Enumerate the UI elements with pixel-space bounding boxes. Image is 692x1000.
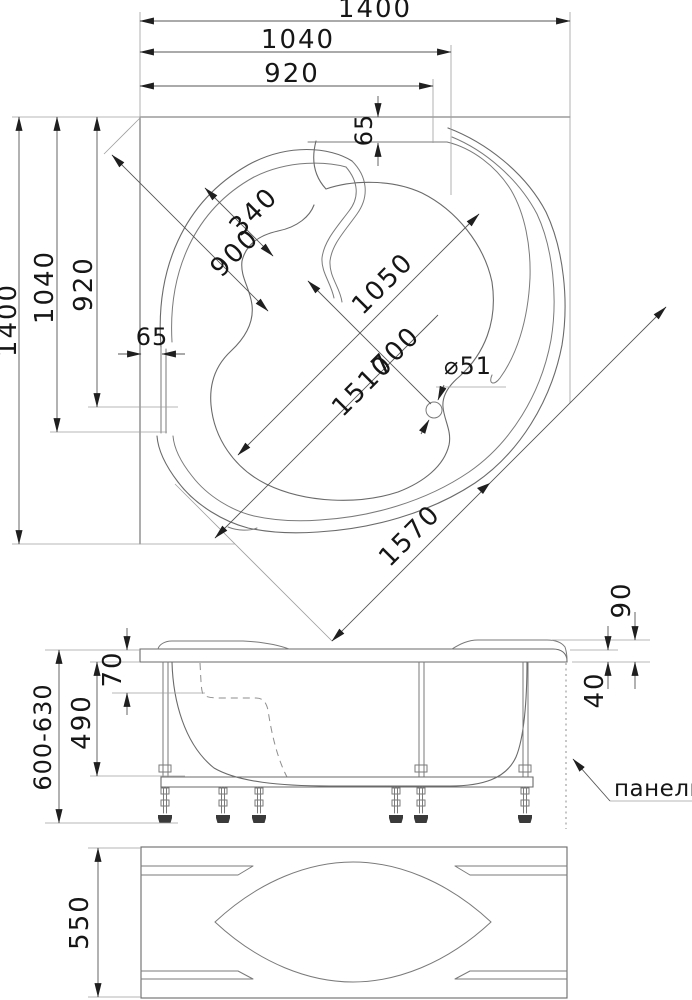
plan-1570-mid-arrow xyxy=(477,483,490,494)
side-dim-90: 90 xyxy=(607,581,637,618)
side-shell-outline xyxy=(172,662,527,786)
side-panel-leader xyxy=(573,759,610,801)
plan-dim-920-top: 920 xyxy=(264,59,320,89)
plan-view: ⌀51 1400 1040 920 65 1400 1040 920 65 xyxy=(0,0,666,641)
side-panel-label: панель xyxy=(614,776,692,802)
plan-apron-outer-edge xyxy=(157,128,565,533)
plan-ext-corner-diagonal xyxy=(104,117,141,154)
front-ext-550 xyxy=(88,848,141,997)
plan-dim-65-left: 65 xyxy=(136,323,169,351)
side-adjustable-feet xyxy=(158,787,532,823)
plan-dim-1040-left: 1040 xyxy=(30,250,60,324)
plan-rim-right-lobe-curve xyxy=(447,142,530,383)
plan-dimline-1050 xyxy=(238,214,479,455)
plan-dim-1040-top: 1040 xyxy=(261,25,335,55)
side-headrest-right xyxy=(452,640,567,660)
plan-dim-65-top: 65 xyxy=(350,114,378,147)
front-slot-bottom-right xyxy=(455,971,567,979)
plan-dim-drain: ⌀51 xyxy=(444,352,492,380)
front-panel-lens-relief xyxy=(215,862,491,982)
side-dim-490: 490 xyxy=(67,694,97,750)
drawing-sheet: ⌀51 1400 1040 920 65 1400 1040 920 65 xyxy=(0,0,692,1000)
side-headrest-left xyxy=(158,641,289,649)
plan-dim-900: 900 xyxy=(205,223,266,284)
side-view: 70 490 600-630 90 40 панель xyxy=(29,581,692,829)
side-dim-40: 40 xyxy=(580,671,610,708)
front-slot-top-left xyxy=(141,866,253,875)
front-slot-top-right xyxy=(455,866,567,875)
plan-seat-wave-b xyxy=(322,167,356,298)
front-slot-bottom-left xyxy=(141,971,253,979)
front-dim-550: 550 xyxy=(65,894,95,950)
side-frame-struts xyxy=(163,662,528,777)
plan-drain-hole xyxy=(426,402,442,418)
bathtub-technical-drawing: ⌀51 1400 1040 920 65 1400 1040 920 65 xyxy=(0,0,692,1000)
front-panel-view: 550 xyxy=(65,847,567,998)
plan-ext-1400-top xyxy=(140,12,570,117)
side-seat-profile-hidden xyxy=(200,663,287,777)
front-panel-outline xyxy=(141,847,567,998)
side-dim-70: 70 xyxy=(98,650,128,687)
plan-dim-1400-left: 1400 xyxy=(0,283,23,357)
plan-dim-1510: 1510 xyxy=(326,349,400,423)
plan-dim-920-left: 920 xyxy=(69,256,99,312)
plan-corner-construction-left xyxy=(175,484,332,641)
plan-dim-1400-top: 1400 xyxy=(338,0,412,24)
plan-drain-arrow-bottom xyxy=(421,420,429,434)
side-dim-600-630: 600-630 xyxy=(29,683,57,790)
side-rim-slab xyxy=(140,649,567,662)
